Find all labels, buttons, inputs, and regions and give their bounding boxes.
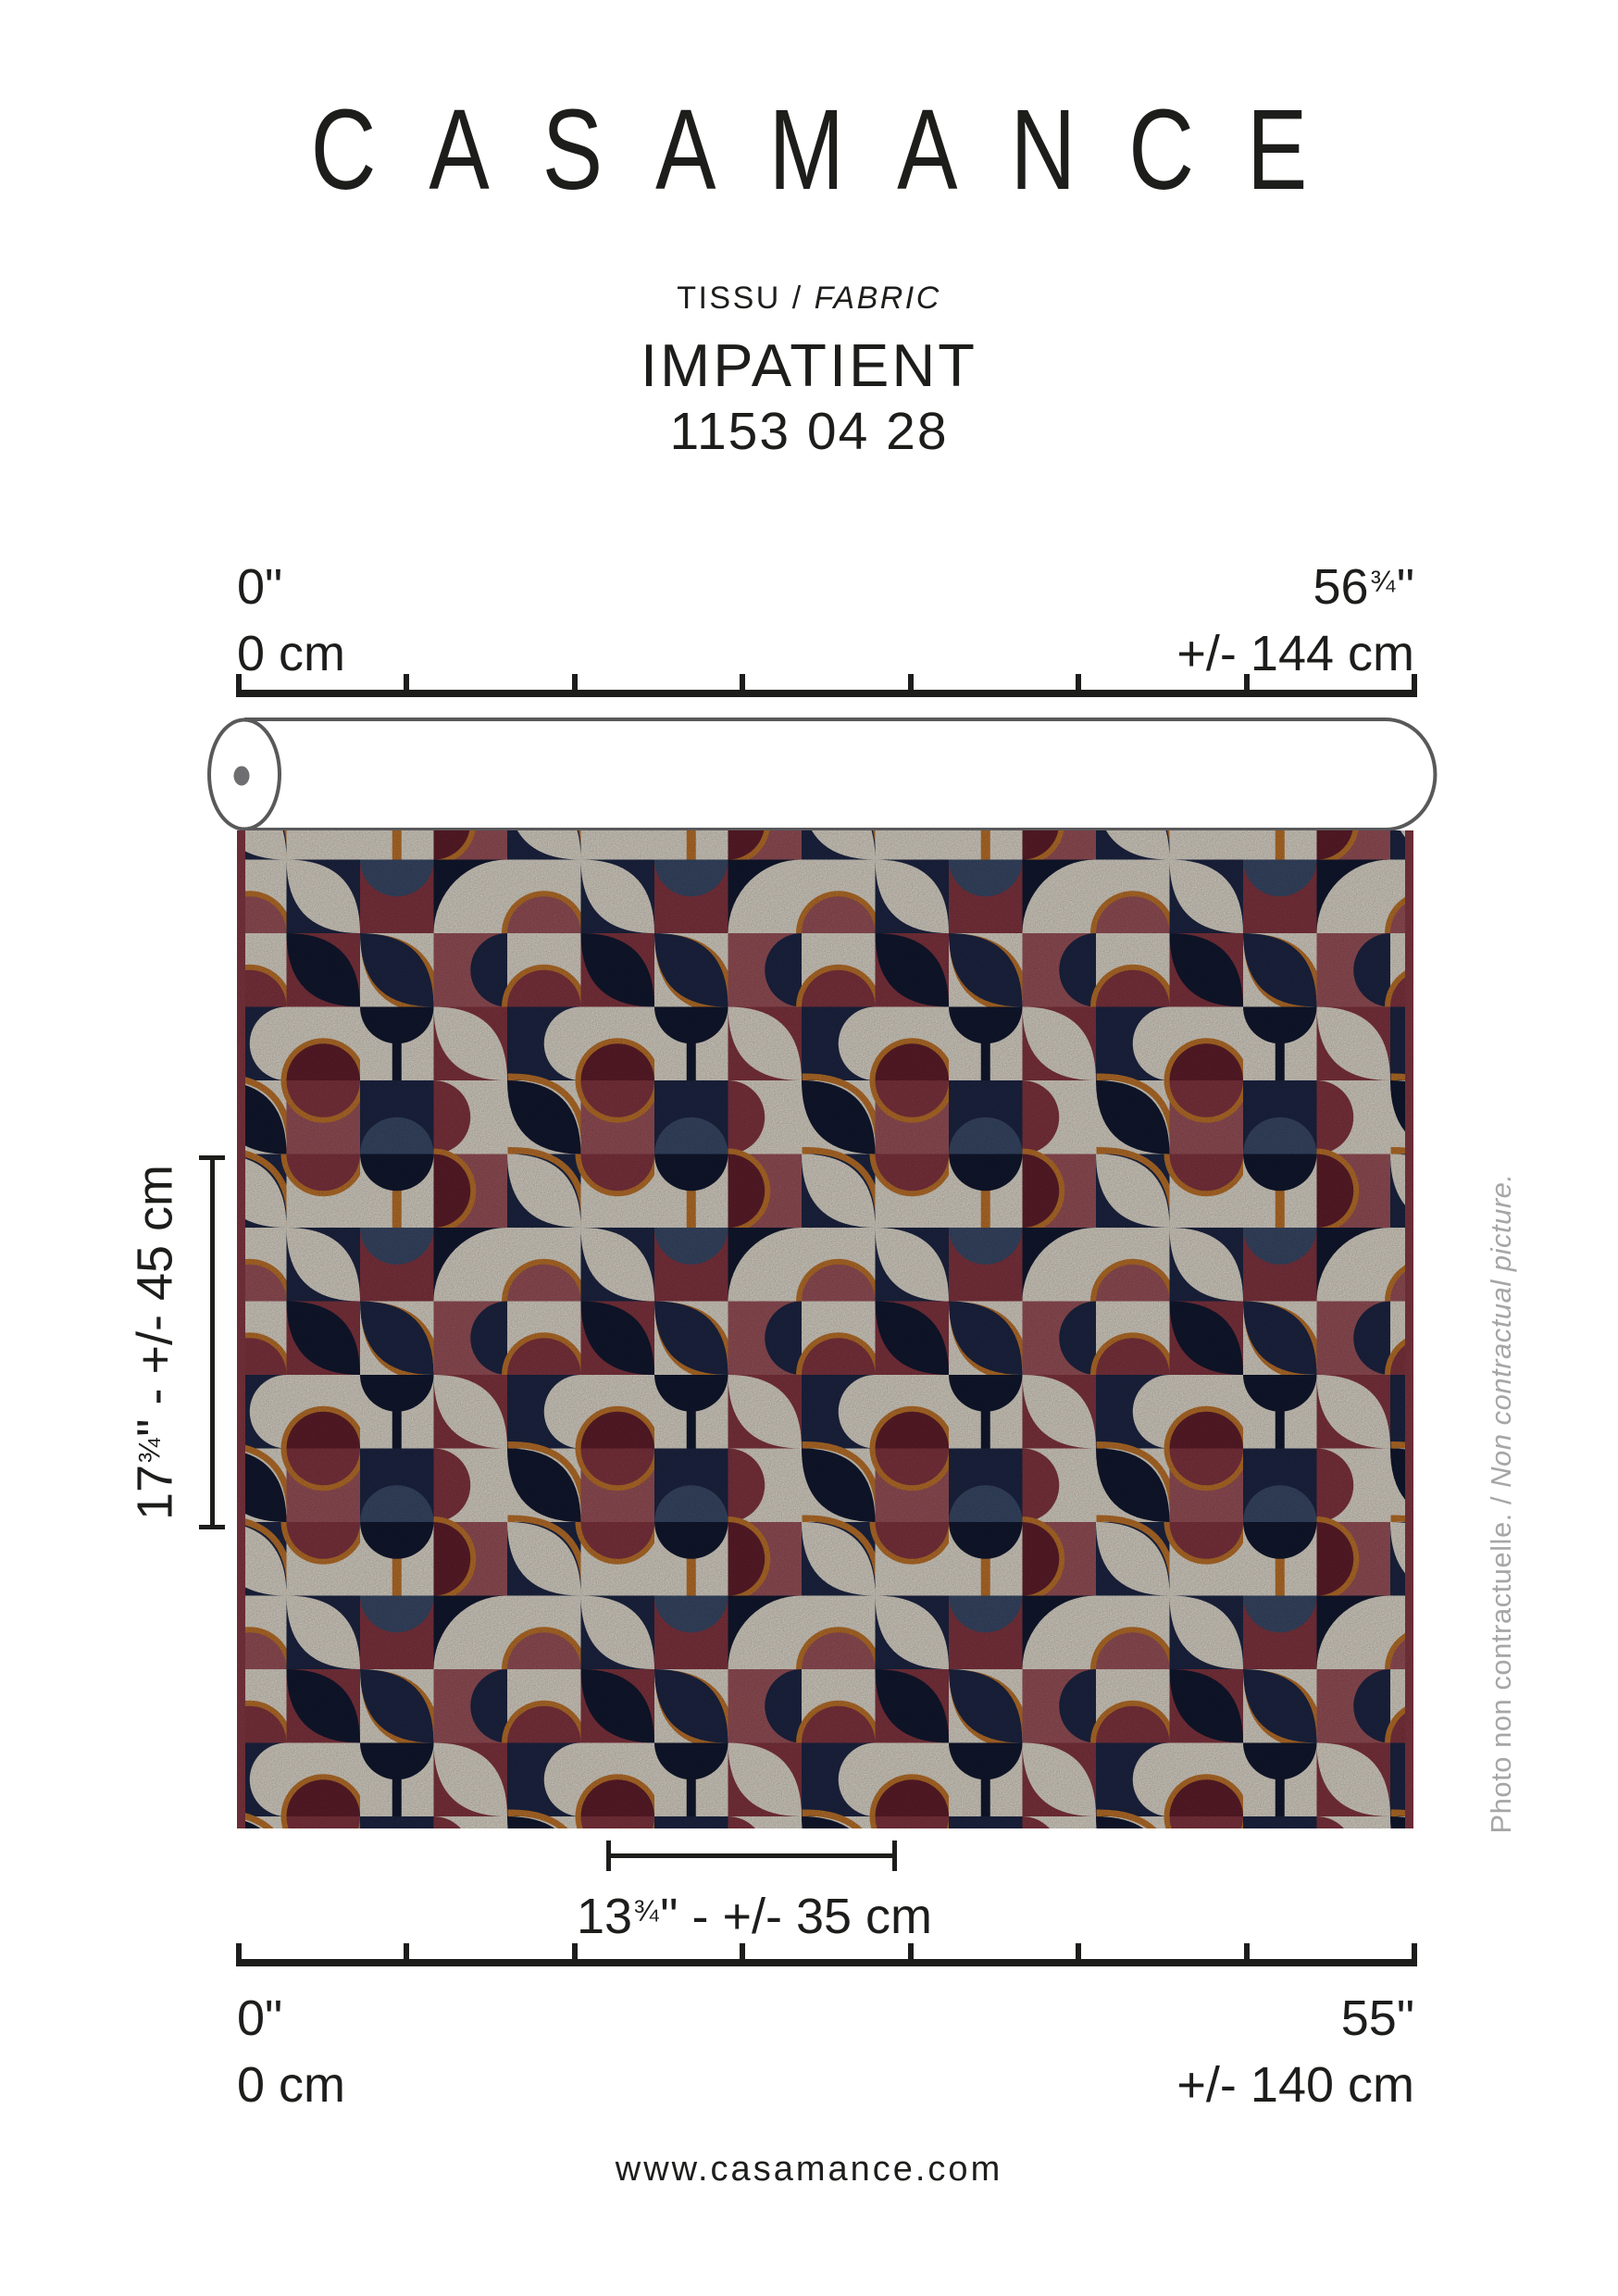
ruler-tick [236, 674, 242, 697]
ruler-tick [572, 674, 578, 697]
repeat-measure-tick-left [606, 1841, 611, 1871]
bottom-ruler-right-cm: +/- 140 cm [1176, 2057, 1414, 2113]
product-category-fr: TISSU / [677, 281, 814, 316]
roll-core-dot-icon [234, 767, 250, 786]
bottom-width-ruler [239, 1959, 1414, 1966]
brand-title: CASAMANCE [311, 77, 1361, 223]
ruler-tick [572, 1943, 578, 1966]
repeat-measure-rest: " - +/- 35 cm [660, 1889, 932, 1944]
caption-french: Photo non contractuelle. / [1485, 1488, 1517, 1834]
vertical-measure-rest: " - +/- 45 cm [128, 1165, 183, 1437]
caption-english: Non contractual picture. [1485, 1173, 1517, 1487]
vertical-measure-frac: ¾ [133, 1438, 167, 1463]
top-ruler-right-inches-unit: " [1397, 559, 1414, 615]
top-ruler-right-cm: +/- 144 cm [1176, 626, 1414, 681]
fabric-swatch-pattern [237, 830, 1413, 1828]
vertical-measure-line [210, 1157, 215, 1528]
footer-website: www.casamance.com [0, 2150, 1618, 2190]
ruler-tick [740, 674, 745, 697]
repeat-measure-tick-right [892, 1841, 897, 1871]
ruler-tick [908, 674, 914, 697]
vertical-measure-main: 17 [128, 1465, 183, 1520]
ruler-tick [1244, 674, 1250, 697]
product-category: TISSU / FABRIC [0, 280, 1618, 317]
top-ruler-right-inches-frac: ¾ [1370, 565, 1395, 598]
vertical-measure-tick-top [199, 1155, 225, 1160]
bottom-ruler-left-inches: 0" [237, 1990, 282, 2046]
ruler-tick [1412, 674, 1417, 697]
repeat-measure-bar [606, 1853, 897, 1858]
ruler-tick [1412, 1943, 1417, 1966]
repeat-measure-frac: ¾ [634, 1894, 659, 1928]
top-ruler-left-cm: 0 cm [237, 626, 345, 681]
product-category-en: FABRIC [815, 281, 941, 316]
non-contractual-caption: Photo non contractuelle. / Non contractu… [1485, 1173, 1518, 1833]
fabric-roll-illustration [185, 702, 1453, 841]
brand-logo: CASAMANCE [0, 93, 1618, 208]
bottom-ruler-right-inches: 55" [1341, 1990, 1414, 2046]
repeat-measure-label: 13¾" - +/- 35 cm [577, 1889, 932, 1951]
vertical-measure-tick-bottom [199, 1525, 225, 1529]
product-code: 1153 04 28 [0, 402, 1618, 461]
ruler-tick [236, 1943, 242, 1966]
bottom-ruler-left-cm: 0 cm [237, 2057, 345, 2113]
roll-body [244, 719, 1435, 830]
ruler-tick [404, 1943, 409, 1966]
top-ruler-left-inches: 0" [237, 559, 282, 615]
top-ruler-right-inches: 56¾" [1313, 559, 1414, 621]
ruler-tick [1076, 1943, 1081, 1966]
product-name: IMPATIENT [0, 331, 1618, 400]
ruler-tick [1244, 1943, 1250, 1966]
vertical-measure-label: 17¾" - +/- 45 cm [128, 1165, 190, 1520]
repeat-measure-main: 13 [577, 1889, 632, 1944]
ruler-tick [740, 1943, 745, 1966]
ruler-tick [404, 674, 409, 697]
ruler-tick [908, 1943, 914, 1966]
ruler-tick [1076, 674, 1081, 697]
top-ruler-right-inches-main: 56 [1313, 559, 1369, 615]
top-width-ruler [239, 690, 1414, 697]
spec-sheet-page: CASAMANCE TISSU / FABRIC IMPATIENT 1153 … [0, 0, 1618, 2296]
